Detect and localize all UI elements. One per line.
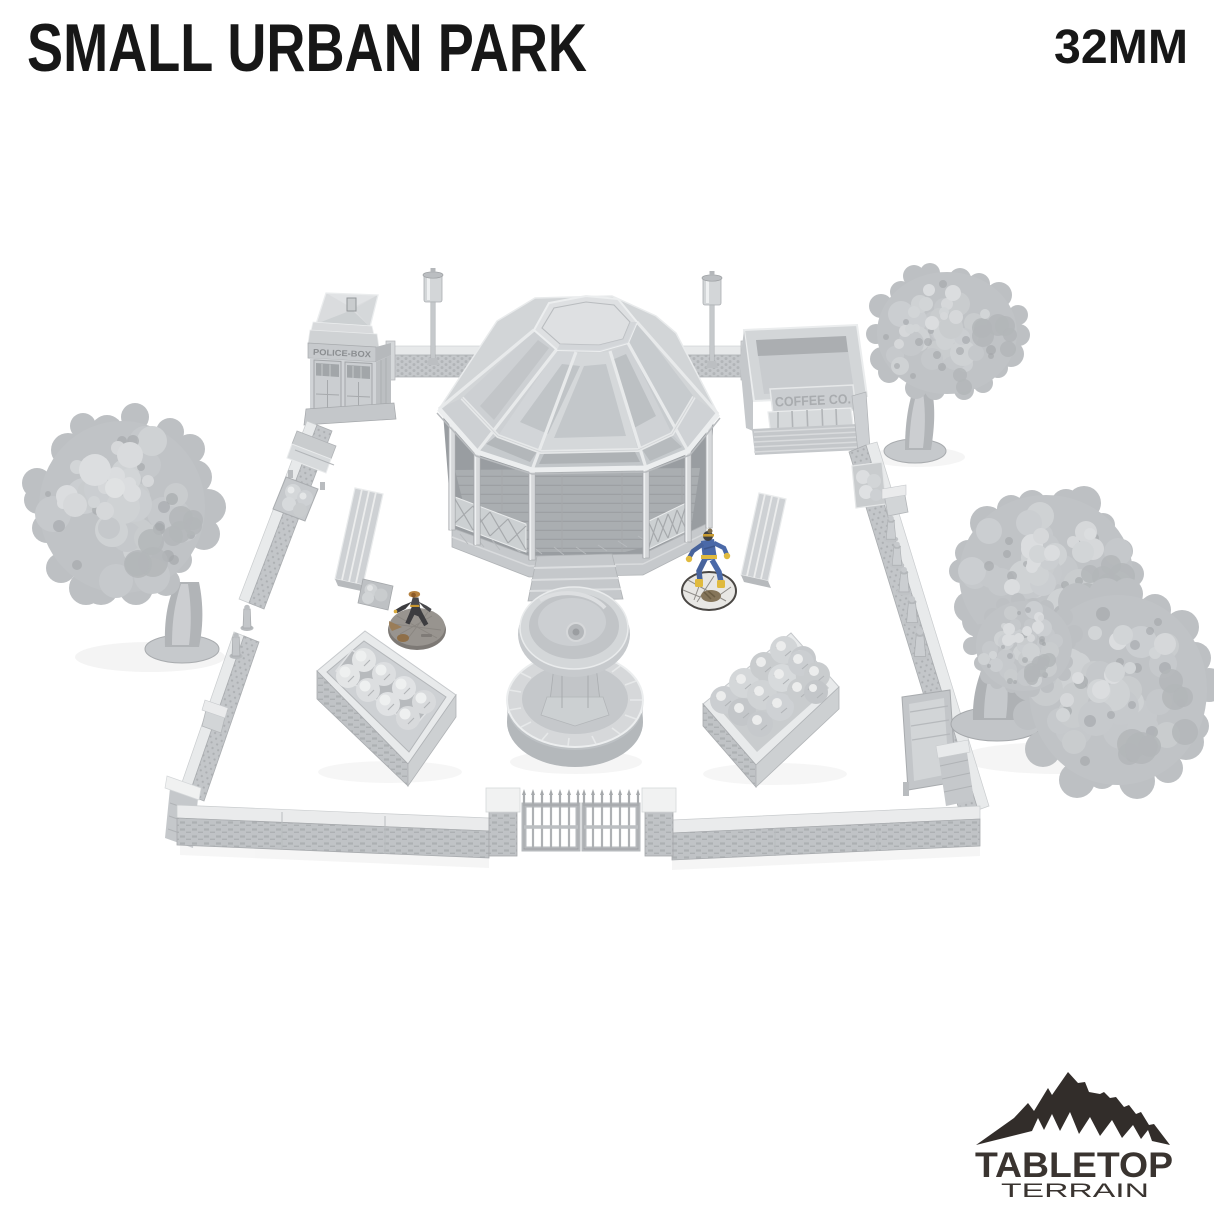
svg-text:SMALL URBAN PARK: SMALL URBAN PARK <box>27 10 587 86</box>
svg-text:32MM: 32MM <box>1054 21 1188 74</box>
svg-text:TERRAIN: TERRAIN <box>1001 1181 1149 1202</box>
svg-text:TABLETOP: TABLETOP <box>975 1146 1173 1185</box>
